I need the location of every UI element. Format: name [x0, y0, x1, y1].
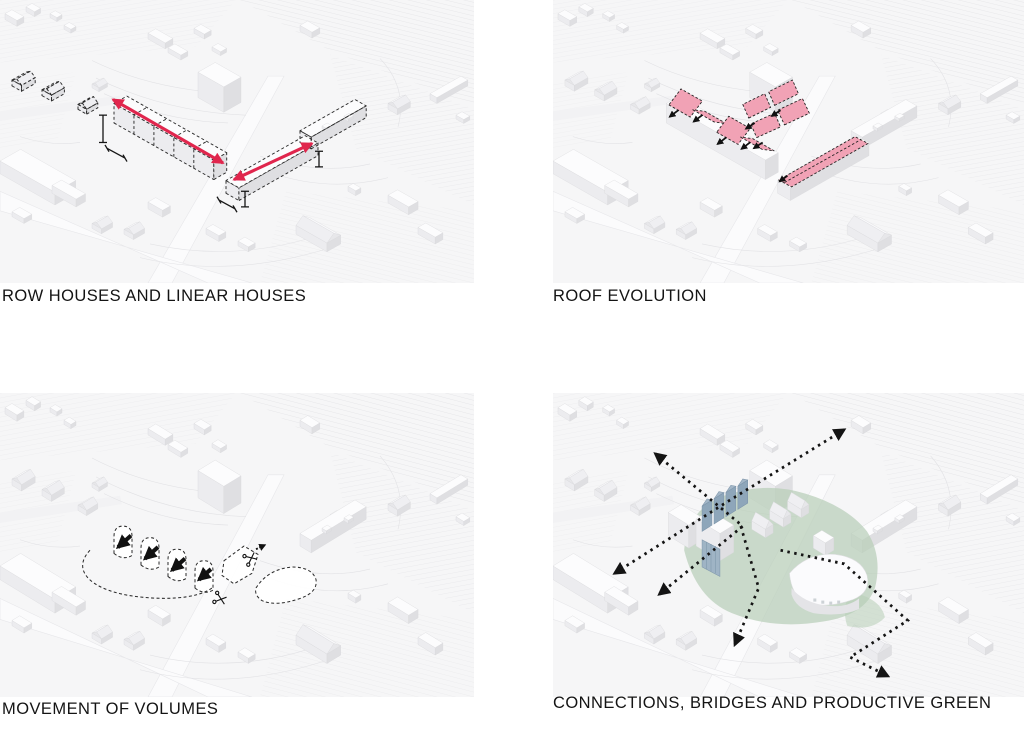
diagram-panel-roof-evolution — [553, 0, 1024, 283]
diagram-panel-connections — [553, 393, 1024, 697]
diagram-panel-row-houses — [0, 0, 474, 283]
diagram-panel-movement — [0, 393, 474, 697]
panel-caption-connections: CONNECTIONS, BRIDGES AND PRODUCTIVE GREE… — [553, 694, 991, 712]
diagram-board: ROW HOUSES AND LINEAR HOUSES ROOF EVOLUT… — [0, 0, 1024, 733]
panel-caption-row-houses: ROW HOUSES AND LINEAR HOUSES — [2, 287, 306, 305]
panel-caption-movement: MOVEMENT OF VOLUMES — [2, 700, 218, 718]
panel-caption-roof-evolution: ROOF EVOLUTION — [553, 287, 707, 305]
